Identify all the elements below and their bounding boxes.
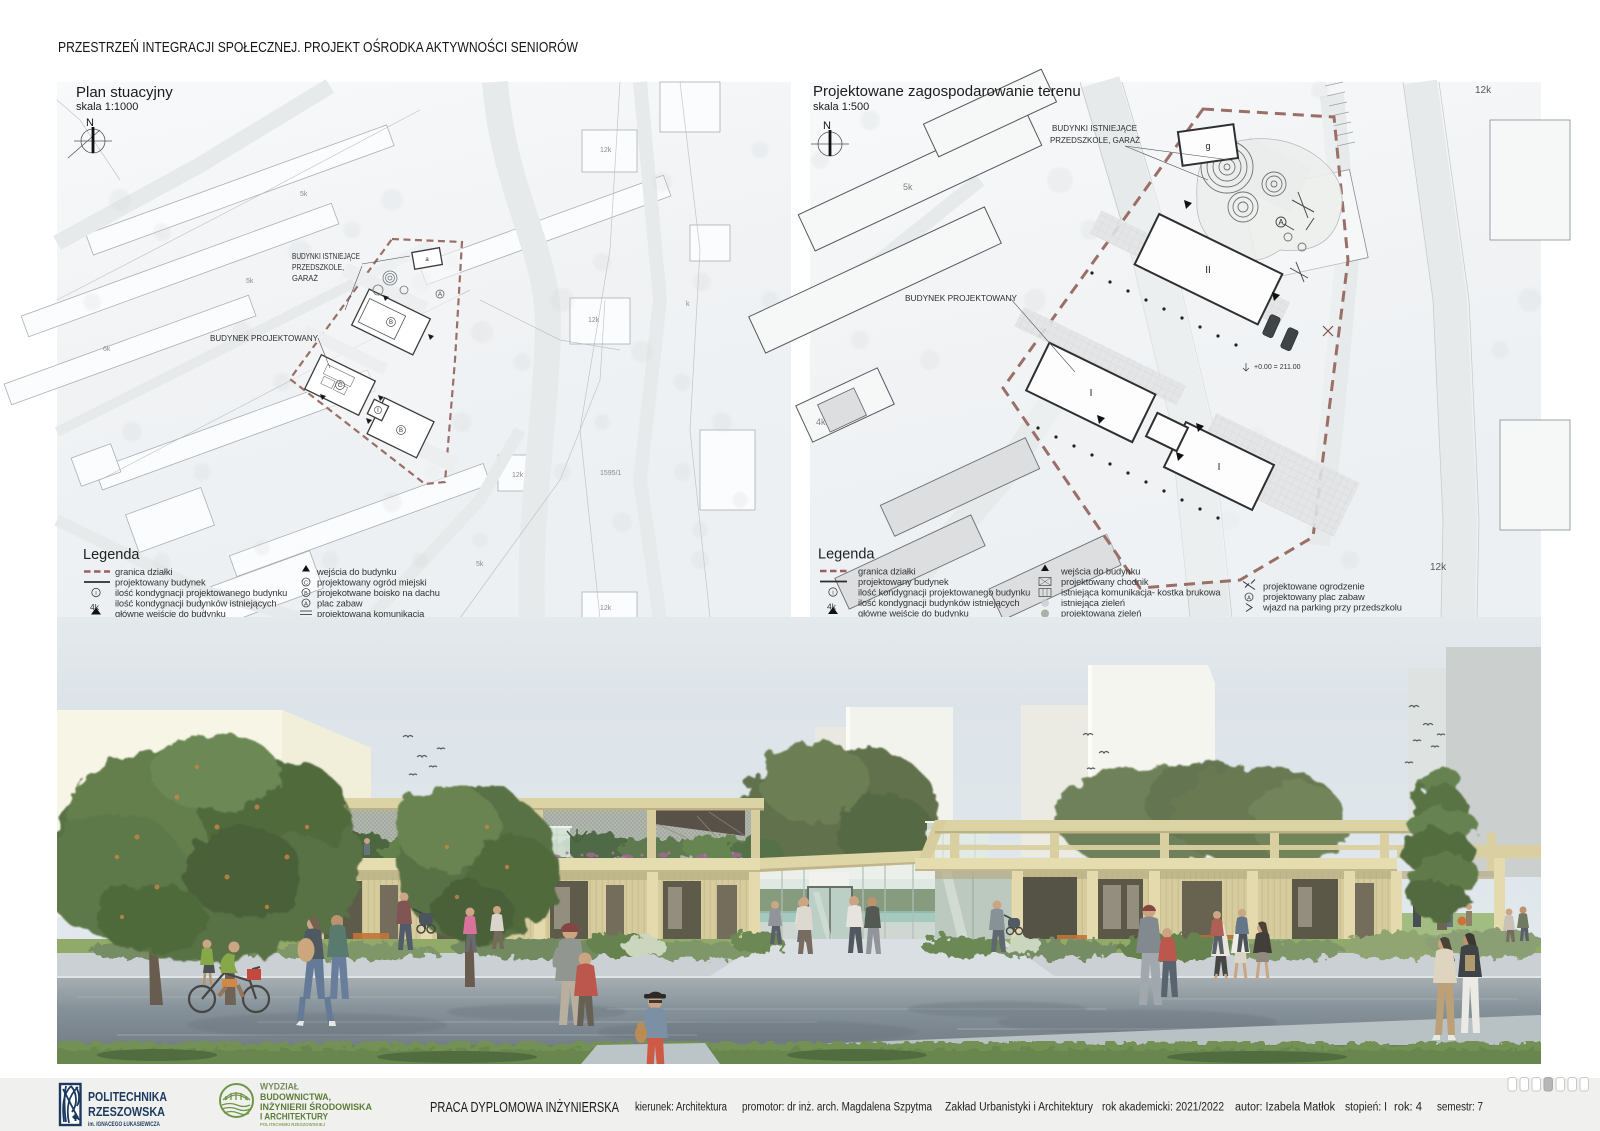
svg-text:6k: 6k bbox=[103, 346, 111, 353]
svg-text:Plan stuacyjny: Plan stuacyjny bbox=[76, 84, 173, 101]
svg-text:C: C bbox=[338, 383, 343, 389]
svg-text:4k: 4k bbox=[816, 417, 826, 427]
svg-text:granica działki: granica działki bbox=[115, 567, 172, 577]
svg-text:GARAŻ: GARAŻ bbox=[292, 274, 318, 283]
svg-text:istniejąca zieleń: istniejąca zieleń bbox=[1061, 598, 1125, 608]
svg-text:plac zabaw: plac zabaw bbox=[317, 599, 363, 609]
svg-text:g: g bbox=[1205, 141, 1210, 151]
svg-text:granica działki: granica działki bbox=[858, 567, 915, 577]
svg-text:5k: 5k bbox=[300, 191, 308, 198]
svg-text:B: B bbox=[304, 591, 308, 597]
svg-text:semestr: 7: semestr: 7 bbox=[1437, 1102, 1483, 1114]
svg-text:12k: 12k bbox=[600, 605, 612, 612]
svg-text:A: A bbox=[304, 602, 308, 608]
svg-text:wejścia do budynku: wejścia do budynku bbox=[1060, 567, 1140, 577]
svg-text:k: k bbox=[686, 301, 690, 308]
svg-text:istniejąca komunikacja- kostka: istniejąca komunikacja- kostka brukowa bbox=[1061, 588, 1221, 598]
svg-text:rok akademicki: 2021/2022: rok akademicki: 2021/2022 bbox=[1102, 1102, 1224, 1114]
svg-text:BUDYNKI ISTNIEJĄCE: BUDYNKI ISTNIEJĄCE bbox=[1052, 123, 1137, 133]
svg-text:5k: 5k bbox=[246, 278, 254, 285]
svg-text:5k: 5k bbox=[903, 182, 913, 192]
svg-text:+0.00 = 211.00: +0.00 = 211.00 bbox=[1254, 364, 1301, 371]
svg-text:II: II bbox=[1205, 265, 1211, 276]
svg-text:BUDYNKI ISTNIEJĄCE: BUDYNKI ISTNIEJĄCE bbox=[292, 252, 360, 261]
svg-text:I: I bbox=[1090, 388, 1093, 399]
svg-text:12k: 12k bbox=[512, 472, 524, 479]
svg-text:12k: 12k bbox=[588, 317, 600, 324]
svg-text:12k: 12k bbox=[600, 147, 612, 154]
svg-text:skala 1:1000: skala 1:1000 bbox=[76, 101, 138, 113]
svg-text:12k: 12k bbox=[1430, 562, 1447, 573]
svg-text:POLITECHNIKA: POLITECHNIKA bbox=[88, 1090, 167, 1104]
svg-text:Legenda: Legenda bbox=[83, 547, 140, 563]
svg-text:PRZESTRZEŃ INTEGRACJI SPOŁECZN: PRZESTRZEŃ INTEGRACJI SPOŁECZNEJ. PROJEK… bbox=[58, 38, 579, 56]
svg-text:Legenda: Legenda bbox=[818, 547, 875, 563]
svg-text:Zakład Urbanistyki i Architekt: Zakład Urbanistyki i Architektury bbox=[945, 1102, 1093, 1114]
svg-text:RZESZOWSKA: RZESZOWSKA bbox=[88, 1105, 165, 1119]
svg-text:wjazd na parking przy przedszk: wjazd na parking przy przedszkolu bbox=[1262, 603, 1402, 613]
svg-text:autor: Izabela Matłok: autor: Izabela Matłok bbox=[1235, 1102, 1335, 1114]
svg-text:im. IGNACEGO ŁUKASIEWICZA: im. IGNACEGO ŁUKASIEWICZA bbox=[88, 1122, 161, 1128]
svg-text:ilość kondygnacji projektowane: ilość kondygnacji projektowanego budynku bbox=[115, 588, 287, 598]
svg-text:projektowane ogrodzenie: projektowane ogrodzenie bbox=[1263, 582, 1365, 592]
svg-text:projektowany budynek: projektowany budynek bbox=[115, 578, 206, 588]
svg-text:B: B bbox=[389, 320, 393, 326]
svg-text:ilość kondygnacji projektowane: ilość kondygnacji projektowanego budynku bbox=[858, 588, 1030, 598]
svg-text:projekotwane boisko na dachu: projekotwane boisko na dachu bbox=[317, 588, 440, 598]
svg-text:A: A bbox=[1278, 218, 1284, 227]
svg-text:POLITECHNIKI RZESZOWSKIEJ: POLITECHNIKI RZESZOWSKIEJ bbox=[260, 1122, 325, 1127]
svg-text:skala 1:500: skala 1:500 bbox=[813, 101, 869, 113]
svg-text:kierunek: Architektura: kierunek: Architektura bbox=[635, 1102, 727, 1114]
svg-text:PRZEDSZKOLE, GARAŻ: PRZEDSZKOLE, GARAŻ bbox=[1050, 135, 1140, 145]
svg-text:A: A bbox=[1247, 596, 1251, 602]
svg-text:C: C bbox=[304, 581, 308, 587]
svg-text:PRACA DYPLOMOWA INŻYNIERSKA: PRACA DYPLOMOWA INŻYNIERSKA bbox=[430, 1098, 619, 1116]
svg-text:PRZEDSZKOLE,: PRZEDSZKOLE, bbox=[292, 263, 344, 272]
svg-text:Projektowane zagospodarowanie: Projektowane zagospodarowanie terenu bbox=[813, 83, 1081, 100]
svg-text:projektowany ogród miejski: projektowany ogród miejski bbox=[317, 578, 427, 588]
svg-text:projektowany plac zabaw: projektowany plac zabaw bbox=[1263, 592, 1365, 602]
svg-text:ilość kondygnacji budynków ist: ilość kondygnacji budynków istniejących bbox=[858, 598, 1019, 608]
svg-text:I ARCHITEKTURY: I ARCHITEKTURY bbox=[260, 1112, 329, 1123]
svg-text:12k: 12k bbox=[1475, 85, 1492, 96]
svg-text:BUDYNEK PROJEKTOWANY: BUDYNEK PROJEKTOWANY bbox=[905, 293, 1017, 303]
svg-text:WYDZIAŁ: WYDZIAŁ bbox=[260, 1082, 299, 1092]
svg-text:5k: 5k bbox=[476, 561, 484, 568]
svg-text:1595/1: 1595/1 bbox=[600, 470, 622, 477]
svg-text:wejścia do budynku: wejścia do budynku bbox=[316, 567, 396, 577]
svg-text:I: I bbox=[1218, 462, 1221, 473]
svg-text:promotor: dr inż. arch. Magdal: promotor: dr inż. arch. Magdalena Szpytm… bbox=[742, 1102, 933, 1114]
svg-text:projektowany budynek: projektowany budynek bbox=[858, 577, 949, 587]
svg-text:A: A bbox=[438, 292, 442, 298]
svg-text:BUDYNEK PROJEKTOWANY: BUDYNEK PROJEKTOWANY bbox=[210, 334, 319, 343]
svg-text:stopień: I: stopień: I bbox=[1345, 1102, 1387, 1114]
svg-text:projektowany chodnik: projektowany chodnik bbox=[1061, 577, 1149, 587]
svg-text:rok: 4: rok: 4 bbox=[1394, 1102, 1423, 1114]
svg-text:ilość kondygnacji budynków ist: ilość kondygnacji budynków istniejących bbox=[115, 599, 276, 609]
svg-text:B: B bbox=[399, 428, 403, 434]
